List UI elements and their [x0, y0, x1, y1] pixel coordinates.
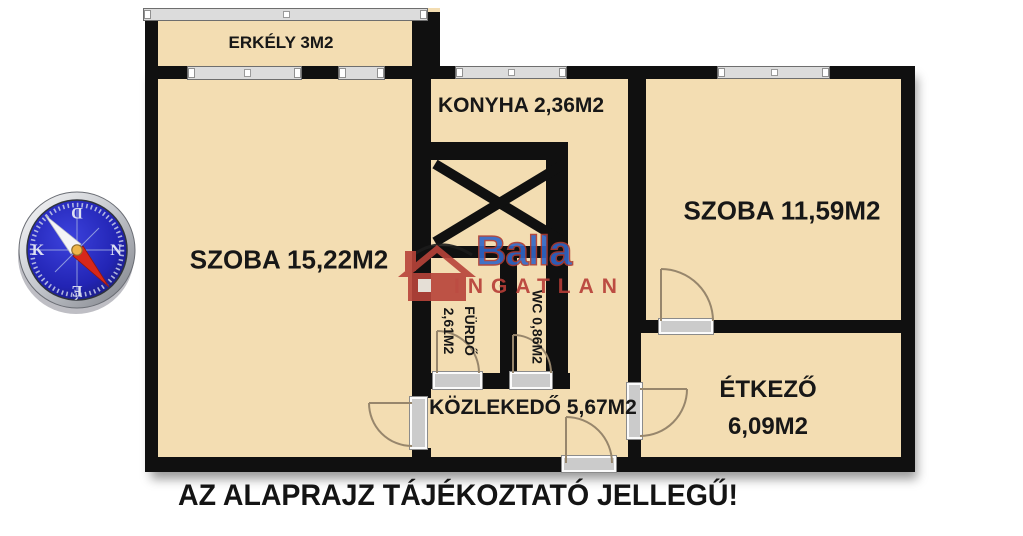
compass-icon: D N É K: [15, 188, 141, 318]
door-arc-room-large: [369, 403, 412, 446]
plan-linework: [0, 0, 1023, 536]
room-label-dining: ÉTKEZŐ 6,09M2: [719, 371, 816, 445]
compass-letter-left: K: [32, 242, 45, 259]
compass-letter-right: N: [110, 242, 122, 259]
shaft-cross-icon: [435, 164, 564, 242]
room-label-balcony: ERKÉLY 3M2: [229, 33, 334, 53]
floorplan-image: ERKÉLY 3M2 KONYHA 2,36M2 SZOBA 15,22M2 S…: [0, 0, 1023, 536]
room-label-bathroom: FÜRDŐ 2,61M2: [438, 306, 480, 356]
dining-area: 6,09M2: [719, 408, 816, 445]
room-label-room-large: SZOBA 15,22M2: [190, 245, 388, 276]
bathroom-name: FÜRDŐ: [459, 306, 480, 356]
compass-letter-bottom: É: [72, 282, 83, 301]
room-label-kitchen: KONYHA 2,36M2: [438, 94, 604, 118]
door-arc-room-small: [661, 269, 713, 321]
bathroom-area: 2,61M2: [438, 306, 459, 356]
compass-letter-top: D: [71, 204, 83, 221]
door-arc-dining: [640, 389, 687, 436]
room-label-hallway: KÖZLEKEDŐ 5,67M2: [429, 396, 637, 420]
room-label-room-small: SZOBA 11,59M2: [683, 196, 880, 227]
door-arc-entrance: [566, 417, 612, 463]
dining-name: ÉTKEZŐ: [719, 371, 816, 408]
room-label-wc: WC 0,86M2: [527, 290, 548, 364]
disclaimer-text: AZ ALAPRAJZ TÁJÉKOZTATÓ JELLEGŰ!: [178, 479, 738, 513]
